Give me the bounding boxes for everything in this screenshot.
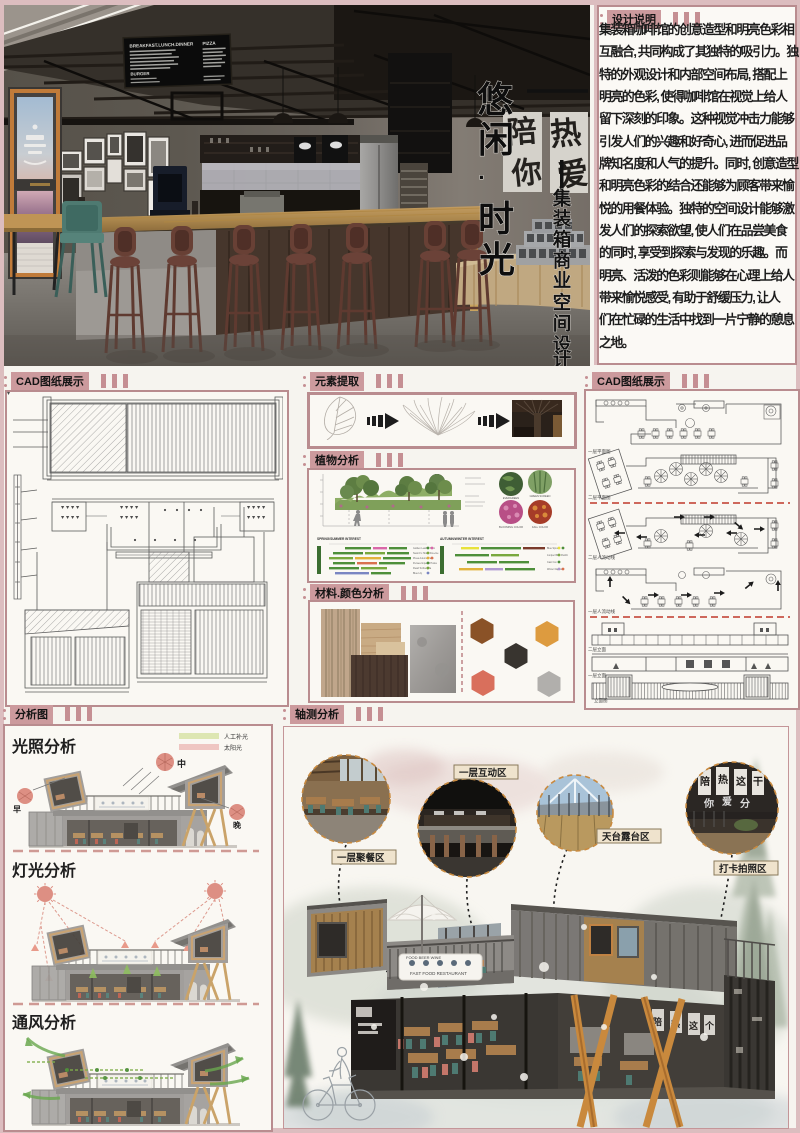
- svg-text:热: 热: [549, 115, 583, 153]
- svg-text:你: 你: [509, 156, 543, 192]
- svg-text:光照分析: 光照分析: [11, 737, 76, 756]
- svg-text:商: 商: [553, 250, 572, 271]
- svg-text:GREEN SCREEN: GREEN SCREEN: [530, 494, 551, 498]
- svg-text:Cast Iron: Cast Iron: [547, 561, 557, 564]
- svg-text:立面图: 立面图: [594, 697, 608, 704]
- svg-text:二层平面图: 二层平面图: [588, 495, 611, 501]
- svg-text:FAST FOOD RESTAURANT: FAST FOOD RESTAURANT: [410, 971, 467, 976]
- svg-text:Sword U.Hosta Fire+Ice: Sword U.Hosta Fire+Ice: [413, 552, 439, 555]
- svg-text:EVERGREEN: EVERGREEN: [503, 496, 519, 500]
- svg-text:业: 业: [553, 270, 572, 291]
- svg-text:装: 装: [552, 208, 572, 229]
- svg-text:一层互动区: 一层互动区: [459, 768, 507, 779]
- svg-text:箱: 箱: [553, 229, 572, 250]
- svg-text:时: 时: [478, 198, 514, 239]
- svg-text:通风分析: 通风分析: [12, 1013, 76, 1032]
- svg-text:FOOD BEER WINE: FOOD BEER WINE: [406, 955, 441, 960]
- svg-text:灯光分析: 灯光分析: [12, 861, 76, 880]
- svg-text:这: 这: [736, 775, 746, 788]
- svg-text:集: 集: [552, 188, 572, 209]
- svg-text:BLOOMING COLOR: BLOOMING COLOR: [499, 525, 523, 529]
- svg-text:FALL COLOR: FALL COLOR: [532, 525, 548, 529]
- svg-text:PIZZA: PIZZA: [202, 41, 216, 46]
- svg-text:Winter Daphne: Winter Daphne: [547, 568, 564, 571]
- svg-text:计: 计: [553, 349, 572, 366]
- svg-text:一层平面图: 一层平面图: [588, 449, 611, 455]
- svg-text:二层人流动线: 二层人流动线: [588, 554, 615, 561]
- svg-text:人工补光: 人工补光: [224, 733, 248, 741]
- svg-text:BURGER: BURGER: [130, 71, 150, 77]
- svg-text:个: 个: [704, 1020, 715, 1031]
- svg-text:Blue Lily: Blue Lily: [413, 572, 423, 575]
- svg-text:AUTUMN/WINTER INTEREST: AUTUMN/WINTER INTEREST: [440, 537, 484, 541]
- svg-text:悠: 悠: [477, 79, 514, 120]
- svg-text:陪: 陪: [700, 775, 710, 788]
- svg-text:闲: 闲: [478, 119, 514, 160]
- svg-text:爱: 爱: [722, 795, 732, 808]
- svg-text:空: 空: [553, 292, 572, 313]
- svg-text:早: 早: [13, 805, 21, 814]
- svg-text:中: 中: [177, 758, 186, 769]
- svg-text:Persea Imperial Hosta: Persea Imperial Hosta: [413, 562, 437, 565]
- svg-text:间: 间: [553, 313, 572, 334]
- svg-text:太阳光: 太阳光: [224, 744, 242, 752]
- svg-text:光: 光: [479, 239, 515, 280]
- svg-text:干: 干: [753, 776, 763, 788]
- svg-text:分: 分: [740, 797, 750, 810]
- svg-text:你: 你: [703, 797, 714, 810]
- svg-text:晚: 晚: [233, 820, 241, 830]
- svg-text:天台露台区: 天台露台区: [602, 831, 650, 843]
- svg-text:热: 热: [718, 773, 728, 786]
- svg-text:这: 这: [689, 1020, 698, 1031]
- svg-text:打卡拍照区: 打卡拍照区: [719, 863, 767, 875]
- svg-text:SPRING/SUMMER INTEREST: SPRING/SUMMER INTEREST: [317, 537, 361, 541]
- svg-text:一层立面: 一层立面: [588, 672, 606, 679]
- svg-text:·: ·: [478, 165, 485, 190]
- svg-text:二层立面: 二层立面: [588, 646, 606, 653]
- svg-text:一层聚餐区: 一层聚餐区: [337, 852, 385, 864]
- svg-text:一层人流动线: 一层人流动线: [588, 608, 615, 615]
